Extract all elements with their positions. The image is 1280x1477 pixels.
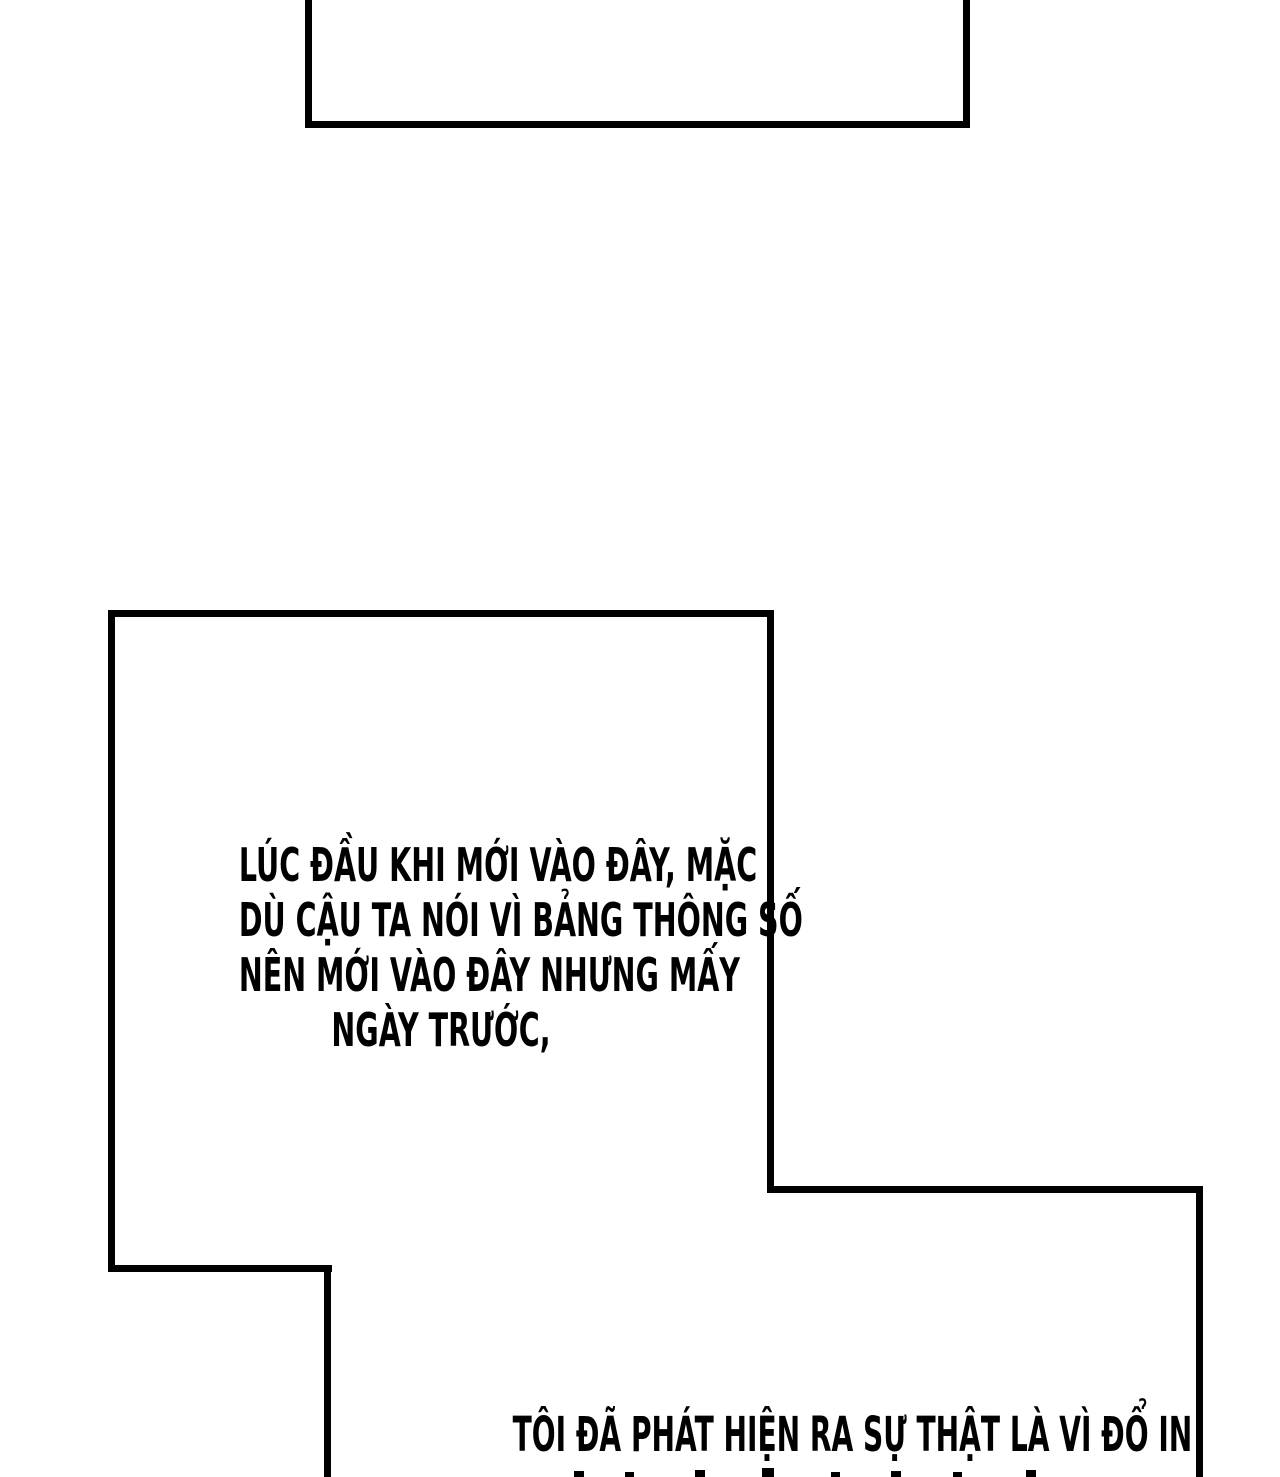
dialogue-middle-line-4: NGÀY TRƯỚC, xyxy=(239,1003,643,1058)
dialogue-bottom-line-1: TÔI ĐÃ PHÁT HIỆN RA SỰ THẬT LÀ VÌ ĐỔ IN xyxy=(513,1407,1017,1463)
cutoff-text-fragment xyxy=(574,1471,584,1477)
comic-page: LÚC ĐẦU KHI MỚI VÀO ĐÂY, MẶC DÙ CẬU TA N… xyxy=(0,0,1280,1477)
panel-bottom-border-top xyxy=(767,1186,1203,1193)
panel-top-partial xyxy=(305,0,970,128)
cutoff-text-fragment xyxy=(953,1472,962,1477)
panel-middle-border-left xyxy=(108,610,115,1272)
cutoff-text-fragment xyxy=(625,1472,634,1477)
dialogue-middle: LÚC ĐẦU KHI MỚI VÀO ĐÂY, MẶC DÙ CẬU TA N… xyxy=(115,838,767,1058)
dialogue-middle-line-3: NÊN MỚI VÀO ĐÂY NHƯNG MẤY xyxy=(239,948,643,1003)
panel-bottom-border-left xyxy=(324,1265,331,1477)
cutoff-text-fragment xyxy=(762,1468,774,1477)
panel-step-border-horizontal xyxy=(108,1265,332,1272)
dialogue-bottom: TÔI ĐÃ PHÁT HIỆN RA SỰ THẬT LÀ VÌ ĐỔ IN xyxy=(334,1407,1195,1463)
dialogue-middle-line-2: DÙ CẬU TA NÓI VÌ BẢNG THÔNG SỐ xyxy=(239,893,643,948)
cutoff-text-fragment xyxy=(1026,1470,1036,1477)
cutoff-text-fragment xyxy=(831,1472,840,1477)
dialogue-middle-line-1: LÚC ĐẦU KHI MỚI VÀO ĐÂY, MẶC xyxy=(239,838,643,893)
cutoff-text-fragment xyxy=(891,1471,901,1477)
cutoff-text-fragment xyxy=(695,1470,705,1477)
panel-middle-border-top xyxy=(108,610,774,617)
panel-bottom-border-right xyxy=(1196,1186,1203,1477)
